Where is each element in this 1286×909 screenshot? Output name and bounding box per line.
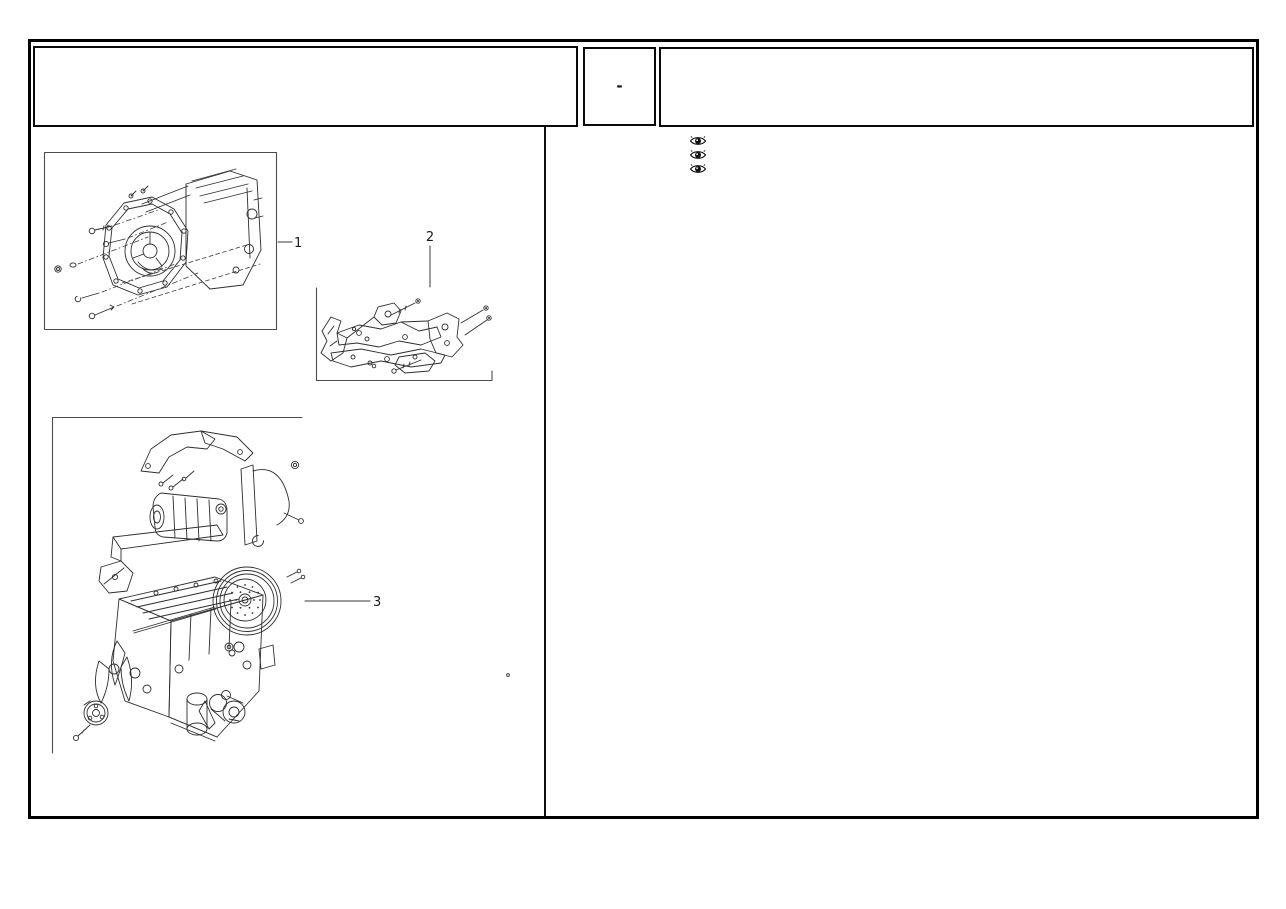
parts-catalog-page: - <box>0 0 1286 909</box>
figure-2-mounting-bracket[interactable]: 2 <box>317 230 493 381</box>
stray-dot <box>507 674 510 677</box>
figure-2-drawing <box>321 299 491 373</box>
figure-1-frame <box>45 153 277 330</box>
illustrations-layer: 1 <box>0 0 1286 909</box>
callout-2-label: 2 <box>426 230 434 245</box>
callout-3-label: 3 <box>373 595 381 610</box>
callout-1-label: 1 <box>294 236 302 251</box>
figure-3-drawing <box>73 431 304 741</box>
figure-1-clutch-housing[interactable]: 1 <box>45 153 303 330</box>
figure-1-drawing <box>55 169 263 319</box>
figure-3-engine-assembly[interactable]: 3 <box>53 418 382 754</box>
